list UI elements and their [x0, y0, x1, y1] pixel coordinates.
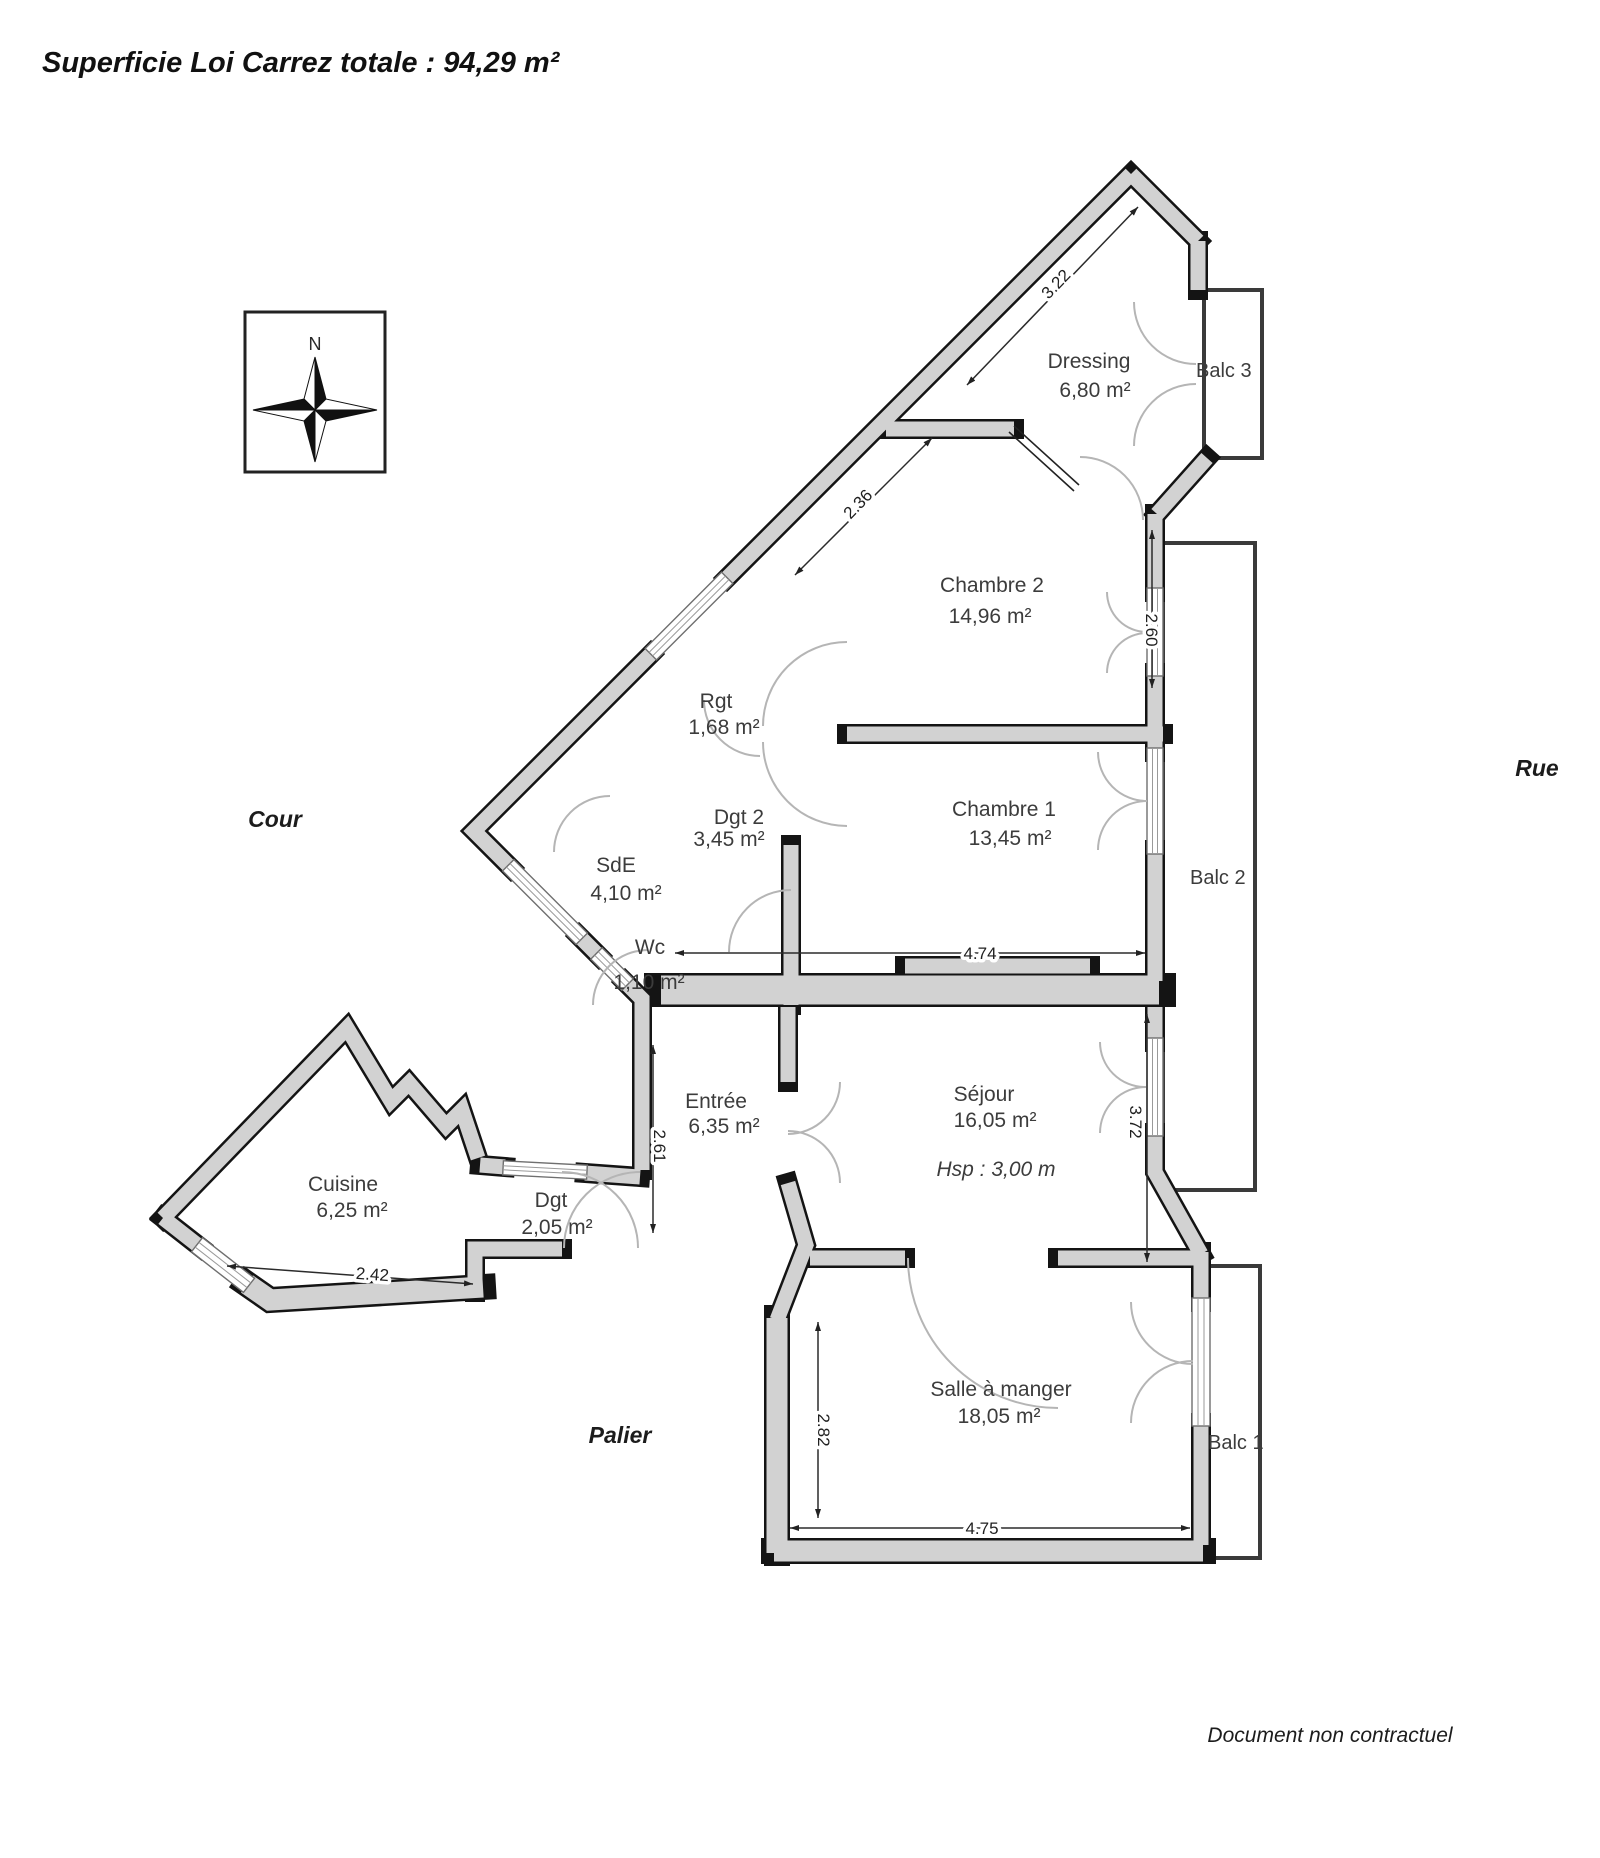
context-label-cour: Cour: [248, 806, 303, 832]
dimension-lines: [227, 207, 1190, 1528]
footer-disclaimer: Document non contractuel: [1207, 1724, 1453, 1747]
room-note-sejour-hsp: Hsp : 3,00 m: [936, 1158, 1055, 1181]
context-label-rue: Rue: [1515, 755, 1559, 781]
room-label-dressing: Dressing: [1048, 350, 1131, 373]
room-area-entree: 6,35 m²: [688, 1115, 759, 1138]
balcony-2-label: Balc 2: [1190, 867, 1246, 889]
room-area-wc: 1,10 m²: [613, 971, 684, 994]
wall-mid-segments: [247, 1284, 1203, 1553]
dimension-2-60: 2.60: [1142, 613, 1161, 646]
dimension-3-72: 3.72: [1126, 1105, 1145, 1138]
room-label-sde: SdE: [596, 854, 636, 877]
compass-north-label: N: [309, 334, 322, 354]
room-area-dgt2: 3,45 m²: [693, 828, 764, 851]
room-area-rgt: 1,68 m²: [688, 716, 759, 739]
room-label-cuisine: Cuisine: [308, 1173, 378, 1196]
room-label-rgt: Rgt: [700, 690, 733, 713]
room-label-wc: Wc: [635, 936, 665, 959]
room-label-sejour: Séjour: [954, 1083, 1015, 1106]
window-salle-a-manger: [1192, 1298, 1210, 1426]
dimension-4-75: 4.75: [965, 1519, 998, 1538]
dimension-4-74: 4.74: [963, 944, 996, 963]
room-label-chambre1: Chambre 1: [952, 798, 1056, 821]
compass-star-icon: [253, 357, 377, 462]
window-sde: [503, 860, 588, 945]
context-label-palier: Palier: [589, 1422, 653, 1448]
room-area-salle-a-manger: 18,05 m²: [958, 1405, 1041, 1428]
room-area-dgt: 2,05 m²: [521, 1216, 592, 1239]
room-area-sde: 4,10 m²: [590, 882, 661, 905]
floorplan-canvas: 3.22 2.36 2.60 4.74 3.72 2.61 2.82 2.42 …: [0, 0, 1600, 1853]
balcony-1-outline: [1208, 1266, 1260, 1558]
dimension-2-61: 2.61: [650, 1129, 669, 1162]
room-area-cuisine: 6,25 m²: [316, 1199, 387, 1222]
room-label-salle-a-manger: Salle à manger: [930, 1378, 1071, 1401]
balcony-3-label: Balc 3: [1196, 360, 1252, 382]
room-area-sejour: 16,05 m²: [954, 1109, 1037, 1132]
dimension-2-36: 2.36: [840, 486, 877, 523]
room-label-entree: Entrée: [685, 1090, 747, 1113]
dimension-texts: 3.22 2.36 2.60 4.74 3.72 2.61 2.82 2.42 …: [355, 266, 1161, 1538]
dimension-2-42: 2.42: [355, 1264, 389, 1285]
window-rgt: [645, 572, 733, 660]
window-chambre1: [1147, 748, 1163, 854]
room-area-chambre1: 13,45 m²: [969, 827, 1052, 850]
room-area-chambre2: 14,96 m²: [949, 605, 1032, 628]
room-label-chambre2: Chambre 2: [940, 574, 1044, 597]
floorplan-page: 3.22 2.36 2.60 4.74 3.72 2.61 2.82 2.42 …: [0, 0, 1600, 1853]
window-sejour: [1147, 1038, 1163, 1136]
room-label-dgt: Dgt: [535, 1189, 568, 1212]
balcony-1-label: Balc 1: [1208, 1432, 1264, 1454]
wall-mid-segments-fill: [247, 1284, 1203, 1553]
room-area-dressing: 6,80 m²: [1059, 379, 1130, 402]
page-title: Superficie Loi Carrez totale : 94,29 m²: [42, 47, 561, 79]
compass-rose: N: [245, 312, 385, 472]
dimension-2-82: 2.82: [814, 1413, 833, 1446]
room-label-dgt2: Dgt 2: [714, 806, 764, 829]
window-cuisine: [191, 1238, 254, 1293]
context-labels: Cour Rue Palier: [248, 755, 1559, 1448]
window-dgt-corridor: [503, 1161, 588, 1179]
